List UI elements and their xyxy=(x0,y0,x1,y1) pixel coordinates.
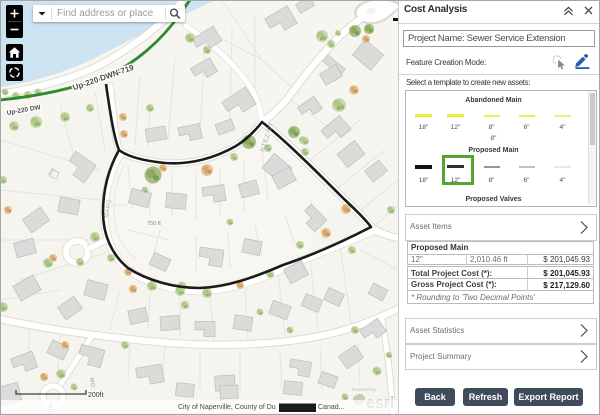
svg-text:750 ft: 750 ft xyxy=(147,221,161,227)
svg-text:200ft: 200ft xyxy=(88,392,104,399)
svg-text:Powered by: Powered by xyxy=(352,387,377,392)
svg-text:Canad...: Canad... xyxy=(318,404,345,411)
svg-text:City of Naperville, County of: City of Naperville, County of Du xyxy=(178,404,276,411)
